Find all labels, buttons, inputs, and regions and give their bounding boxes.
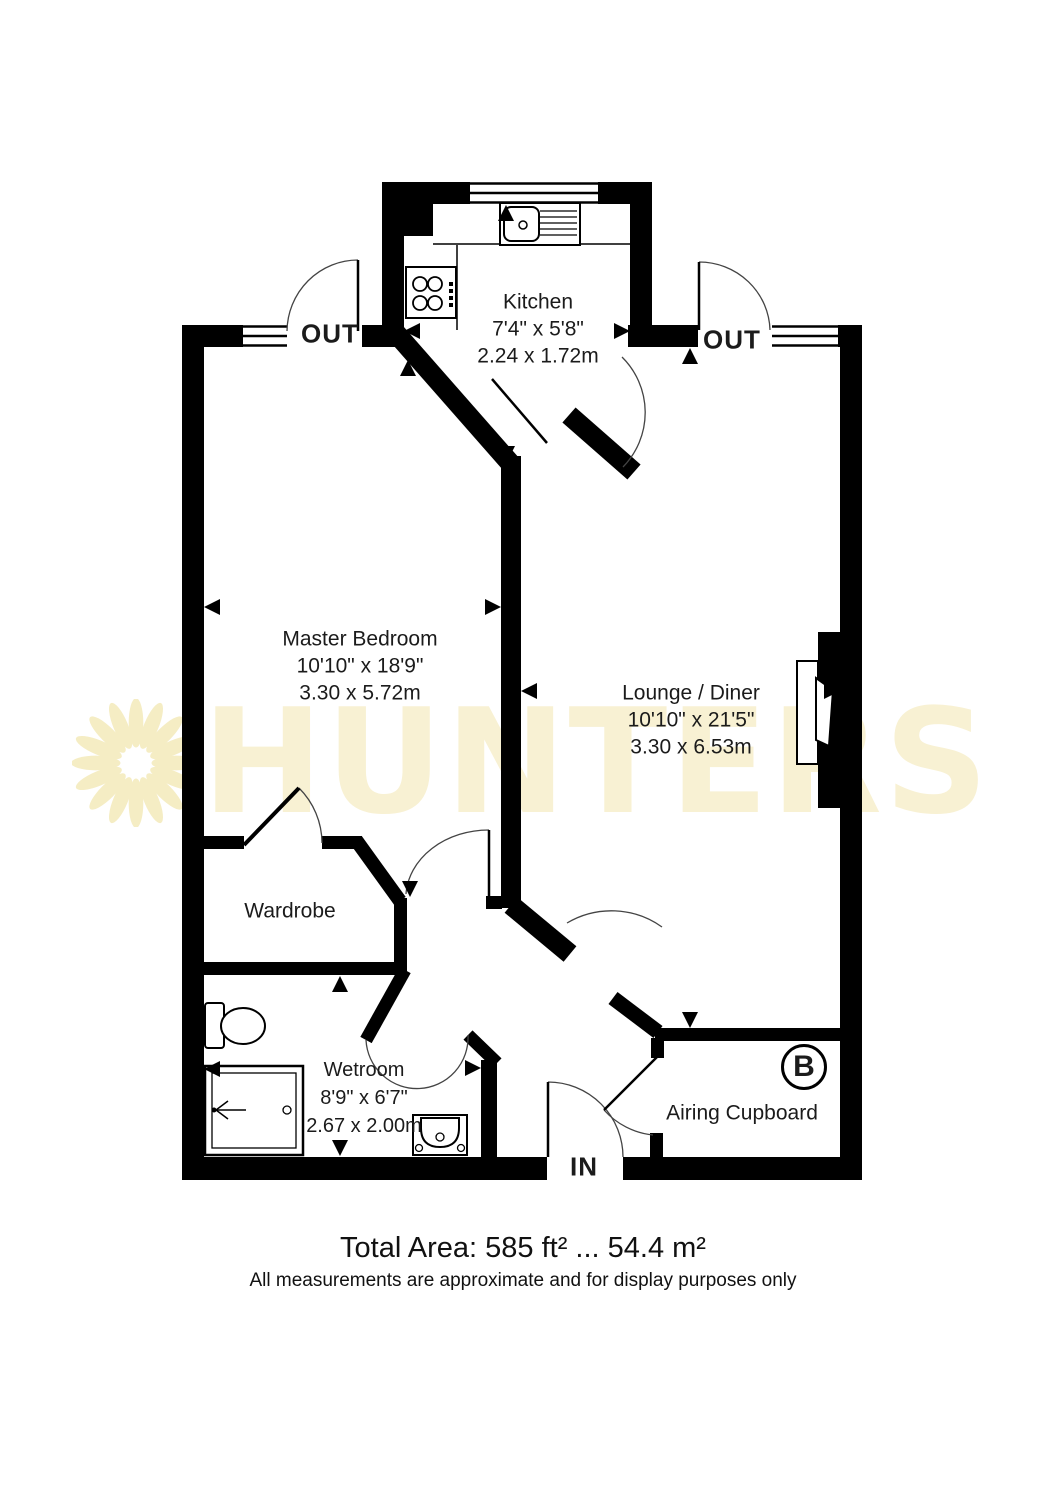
boiler-badge: B xyxy=(781,1044,827,1090)
wetroom-metric: 2.67 x 2.00m xyxy=(306,1112,422,1140)
lounge-diner-name: Lounge / Diner xyxy=(622,680,760,707)
master-bedroom-label: Master Bedroom 10'10" x 18'9" 3.30 x 5.7… xyxy=(282,626,437,707)
lounge-diner-label: Lounge / Diner 10'10" x 21'5" 3.30 x 6.5… xyxy=(622,680,760,761)
in-label: IN xyxy=(570,1152,598,1183)
wardrobe-label: Wardrobe xyxy=(244,898,335,925)
wetroom-name: Wetroom xyxy=(306,1056,422,1084)
kitchen-imperial: 7'4" x 5'8" xyxy=(477,316,598,343)
kitchen-metric: 2.24 x 1.72m xyxy=(477,343,598,370)
kitchen-label: Kitchen 7'4" x 5'8" 2.24 x 1.72m xyxy=(477,289,598,370)
kitchen-name: Kitchen xyxy=(477,289,598,316)
total-area-text: Total Area: 585 ft² ... 54.4 m² xyxy=(0,1232,1046,1265)
wetroom-imperial: 8'9" x 6'7" xyxy=(306,1084,422,1112)
out-right-label: OUT xyxy=(703,325,761,356)
master-bedroom-imperial: 10'10" x 18'9" xyxy=(282,653,437,680)
master-bedroom-name: Master Bedroom xyxy=(282,626,437,653)
wetroom-label: Wetroom 8'9" x 6'7" 2.67 x 2.00m xyxy=(306,1056,422,1140)
boiler-badge-letter: B xyxy=(781,1044,827,1090)
wardrobe-name: Wardrobe xyxy=(244,898,335,925)
out-left-label: OUT xyxy=(301,319,359,350)
airing-cupboard-name: Airing Cupboard xyxy=(666,1100,818,1127)
floorplan-page: HUNTERS xyxy=(0,0,1046,1488)
lounge-diner-imperial: 10'10" x 21'5" xyxy=(622,707,760,734)
lounge-diner-metric: 3.30 x 6.53m xyxy=(622,734,760,761)
disclaimer-text: All measurements are approximate and for… xyxy=(0,1270,1046,1292)
hob-icon xyxy=(406,267,456,318)
master-bedroom-metric: 3.30 x 5.72m xyxy=(282,680,437,707)
airing-cupboard-label: Airing Cupboard xyxy=(666,1100,818,1127)
kitchen-unit-block xyxy=(404,204,433,236)
